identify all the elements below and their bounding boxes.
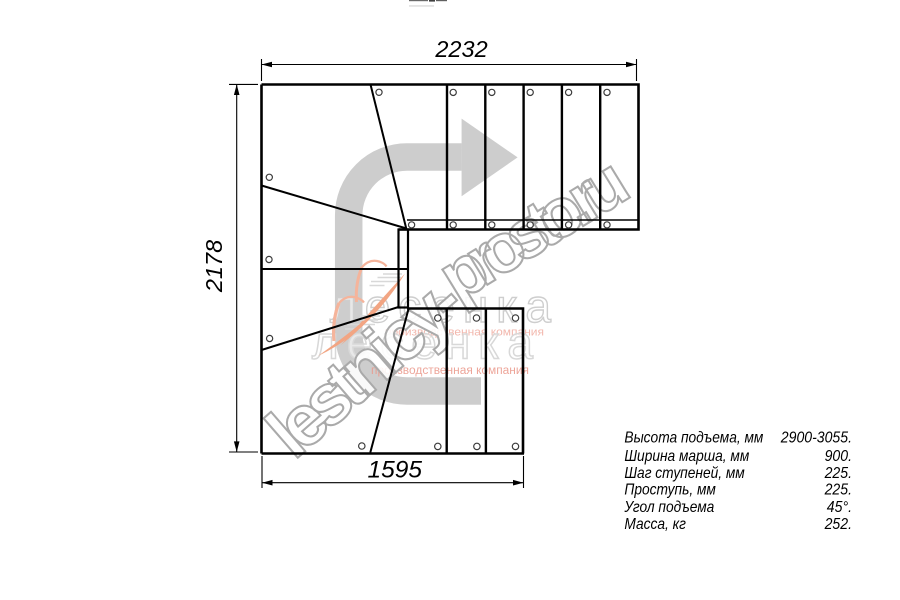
- svg-text:Высота подъема, мм: Высота подъема, мм: [624, 428, 763, 446]
- svg-text:2178: 2178: [201, 240, 227, 293]
- svg-text:Проступь, мм: Проступь, мм: [624, 481, 715, 499]
- svg-text:Масса, кг: Масса, кг: [624, 515, 686, 533]
- svg-text:45°.: 45°.: [827, 498, 852, 516]
- svg-text:2900-3055.: 2900-3055.: [780, 428, 852, 446]
- svg-text:1595: 1595: [367, 457, 422, 484]
- svg-text:900.: 900.: [825, 447, 852, 465]
- svg-text:225.: 225.: [824, 481, 852, 499]
- svg-text:Ширина марша, мм: Ширина марша, мм: [624, 447, 749, 465]
- svg-text:225.: 225.: [824, 464, 852, 482]
- svg-text:2232: 2232: [434, 36, 487, 62]
- svg-text:Угол подъема: Угол подъема: [623, 498, 714, 516]
- svg-text:252.: 252.: [824, 515, 852, 533]
- svg-text:Шаг ступеней, мм: Шаг ступеней, мм: [624, 464, 744, 482]
